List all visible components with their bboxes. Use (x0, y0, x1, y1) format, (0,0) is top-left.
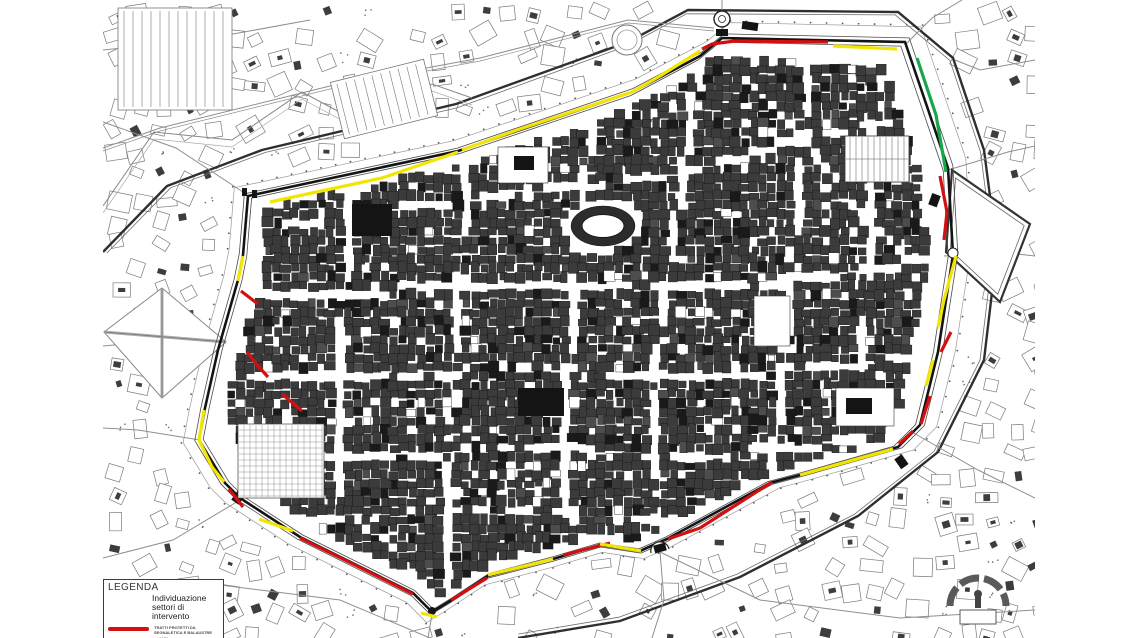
legend-subtitle: Individuazione settori di intervento (152, 594, 218, 622)
legend-entry-label: TRATTI PROTETTI DA SEGNALETICA E BALAUST… (154, 625, 220, 635)
city-map (0, 0, 1134, 638)
map-sheet: LEGENDA Individuazione settori di interv… (0, 0, 1134, 638)
legend: LEGENDA Individuazione settori di interv… (103, 579, 224, 638)
red-line-swatch (108, 627, 149, 632)
legend-title: LEGENDA (108, 582, 219, 593)
legend-entry-protected-balustrade: TRATTI PROTETTI DA SEGNALETICA E BALAUST… (108, 625, 219, 638)
